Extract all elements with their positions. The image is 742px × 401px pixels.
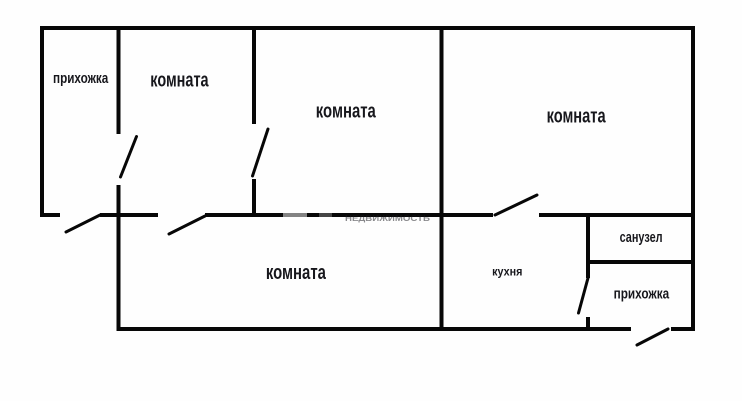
svg-text:комната: комната (547, 106, 607, 128)
svg-text:кухня: кухня (492, 267, 522, 279)
svg-text:прихожка: прихожка (53, 71, 109, 87)
svg-text:прихожка: прихожка (614, 286, 670, 302)
svg-text:комната: комната (150, 69, 209, 91)
svg-text:НЕДВИЖИМОСТЬ: НЕДВИЖИМОСТЬ (345, 214, 430, 223)
svg-text:комната: комната (316, 101, 377, 123)
svg-text:санузел: санузел (620, 229, 663, 246)
svg-text:комната: комната (266, 262, 327, 284)
